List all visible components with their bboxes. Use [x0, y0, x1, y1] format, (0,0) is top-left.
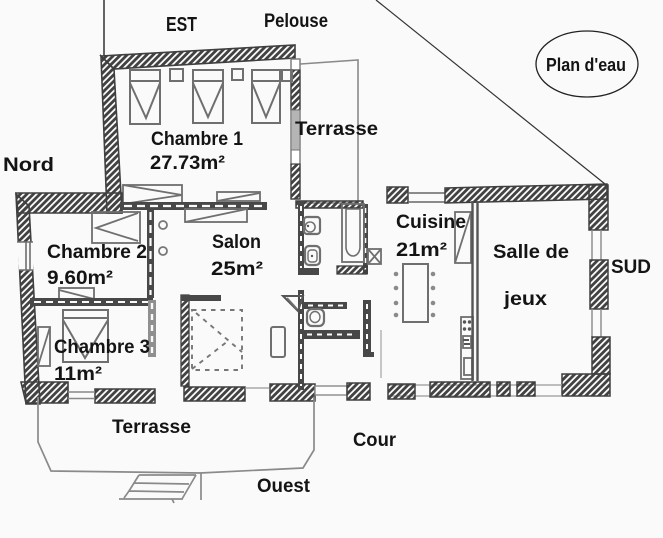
svg-text:SUD: SUD — [611, 257, 651, 278]
svg-text:9.60m²: 9.60m² — [47, 267, 114, 289]
svg-text:Pelouse: Pelouse — [264, 11, 328, 32]
svg-text:Chambre 1: Chambre 1 — [151, 128, 243, 150]
svg-text:Ouest: Ouest — [257, 476, 311, 497]
svg-text:jeux: jeux — [503, 288, 547, 310]
svg-text:Cuisine: Cuisine — [396, 211, 466, 233]
svg-text:21m²: 21m² — [396, 239, 448, 261]
svg-text:11m²: 11m² — [54, 363, 103, 385]
svg-text:Salle de: Salle de — [493, 241, 569, 263]
svg-text:Terrasse: Terrasse — [112, 416, 191, 438]
svg-text:27.73m²: 27.73m² — [150, 152, 226, 174]
svg-text:Cour: Cour — [353, 430, 397, 451]
svg-text:Chambre 3: Chambre 3 — [54, 336, 150, 358]
svg-text:Nord: Nord — [3, 155, 54, 176]
svg-text:Plan d'eau: Plan d'eau — [546, 55, 626, 75]
svg-text:25m²: 25m² — [211, 258, 264, 280]
svg-text:Chambre 2: Chambre 2 — [47, 241, 147, 263]
svg-text:Salon: Salon — [212, 231, 261, 253]
svg-text:EST: EST — [166, 14, 197, 36]
svg-text:Terrasse: Terrasse — [295, 118, 378, 140]
